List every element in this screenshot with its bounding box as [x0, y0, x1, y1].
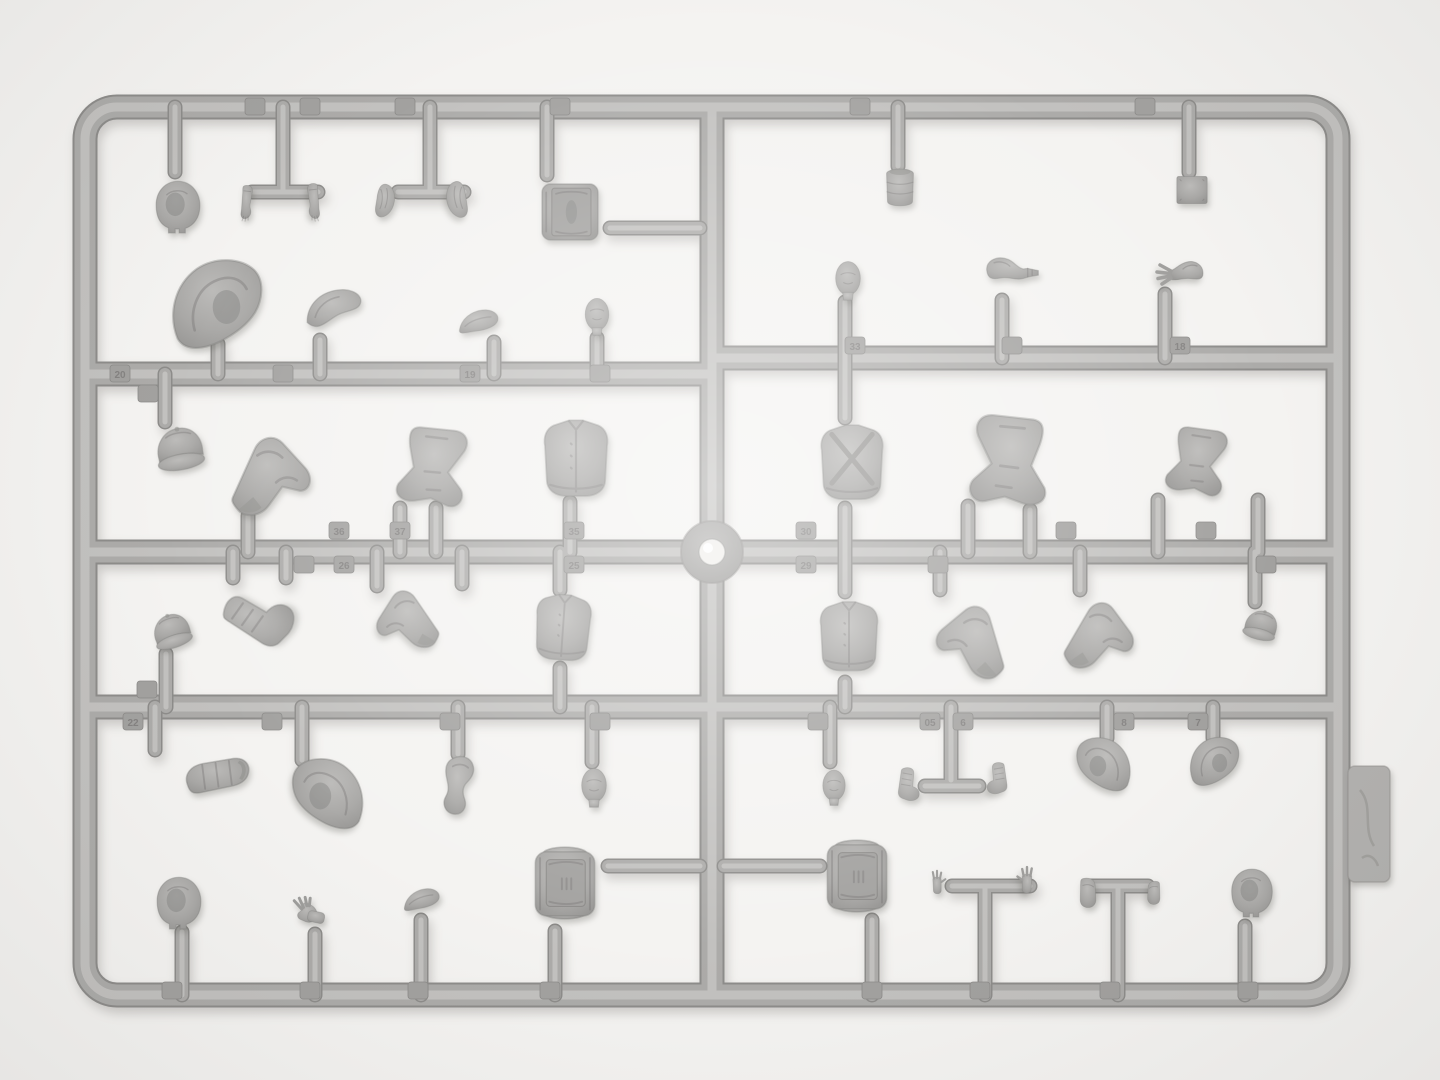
part-raised-hand-left [933, 871, 946, 894]
part-balaclava-head-1 [156, 181, 200, 233]
sprue-svg: 20193318363735302625292205687 [0, 0, 1440, 1080]
part-number-chip [1056, 522, 1076, 539]
part-number-chip [1002, 337, 1022, 354]
part-number-tab [970, 982, 990, 999]
part-number-text: 8 [1121, 718, 1127, 729]
part-number-chip [540, 982, 560, 999]
part-number-tab: 36 [329, 522, 349, 539]
part-number-tab [550, 98, 570, 115]
part-number-text: 7 [1195, 718, 1201, 729]
part-number-chip [970, 982, 990, 999]
part-number-chip [137, 681, 157, 698]
part-number-tab [1100, 982, 1120, 999]
part-legs-pair-3 [1164, 422, 1235, 500]
part-legs-pair-2 [970, 415, 1045, 504]
part-balaclava-head-2 [157, 877, 201, 929]
part-legs-pair-1 [395, 421, 475, 511]
part-number-tab: 7 [1188, 713, 1208, 730]
part-hood-2 [293, 759, 363, 829]
part-number-text: 05 [924, 718, 936, 729]
part-canteen [887, 168, 914, 205]
part-arm-with-pistol [987, 258, 1039, 279]
part-number-tab [1135, 98, 1155, 115]
sprue-photo: 20193318363735302625292205687 [0, 0, 1440, 1080]
part-hood-3 [1077, 738, 1130, 791]
part-number-chip [1256, 556, 1276, 573]
part-number-tab [300, 98, 320, 115]
part-backpack-1 [535, 847, 594, 919]
part-number-tab [395, 98, 415, 115]
part-number-tab [1256, 556, 1276, 573]
gate-highlight [703, 543, 713, 553]
part-number-tab: 35 [564, 522, 584, 539]
part-number-chip [245, 98, 265, 115]
part-head-1 [585, 298, 609, 335]
part-backpack-2 [827, 840, 886, 912]
part-number-tab: 30 [796, 522, 816, 539]
part-number-tab: 33 [845, 337, 865, 354]
part-number-text: 35 [568, 527, 580, 538]
part-torso-2 [534, 593, 593, 662]
part-collar-hood-piece [307, 290, 361, 327]
part-number-chip [300, 982, 320, 999]
part-cuff-piece-1 [1080, 878, 1096, 907]
part-number-text: 22 [127, 718, 139, 729]
part-sleeve-pouch-left [375, 184, 394, 217]
part-number-tab [540, 982, 560, 999]
part-number-tab [440, 713, 460, 730]
part-number-tab [294, 556, 314, 573]
part-number-tab: 05 [920, 713, 940, 730]
part-forearm-hand-left [241, 185, 253, 221]
manufacturer-tab [1348, 766, 1390, 882]
part-number-tab [262, 713, 282, 730]
part-head-2 [836, 262, 861, 301]
part-number-tab: 19 [460, 365, 480, 382]
part-number-tab [590, 365, 610, 382]
part-number-tab: 25 [564, 556, 584, 573]
part-number-tab: 18 [1170, 337, 1190, 354]
part-number-chip [273, 365, 293, 382]
part-field-cap-2 [148, 609, 194, 653]
part-number-tab [162, 982, 182, 999]
part-number-text: 29 [800, 561, 812, 572]
part-bent-leg-2 [932, 602, 1011, 681]
part-balaclava-head-3 [1232, 869, 1273, 917]
part-field-cap-3 [1241, 606, 1280, 643]
part-number-chip [928, 556, 948, 573]
part-bent-leg-3 [1063, 600, 1137, 674]
part-number-tab: 6 [953, 713, 973, 730]
part-number-tab [1056, 522, 1076, 539]
part-number-tab: 37 [390, 522, 410, 539]
part-number-chip [294, 556, 314, 573]
part-boot-shoe [218, 583, 299, 652]
part-number-chip [1135, 98, 1155, 115]
part-number-tab [300, 982, 320, 999]
part-number-tab: 20 [110, 365, 130, 382]
part-supply-box [542, 184, 598, 240]
part-number-tab: 22 [123, 713, 143, 730]
part-coat-roll [186, 758, 248, 793]
part-number-tab [862, 982, 882, 999]
part-number-tab [138, 385, 158, 402]
part-number-chip [440, 713, 460, 730]
part-number-text: 30 [800, 527, 812, 538]
part-crown-pad [402, 887, 441, 911]
part-hood-4 [1190, 737, 1238, 785]
part-number-chip [300, 98, 320, 115]
part-number-chip [590, 365, 610, 382]
part-number-text: 20 [114, 370, 126, 381]
part-number-tab: 8 [1114, 713, 1134, 730]
part-torso-cross-straps [821, 425, 882, 499]
part-lying-leg [371, 586, 440, 655]
part-number-tab [273, 365, 293, 382]
part-torso-buttons [820, 602, 877, 671]
part-torso-1 [545, 420, 608, 496]
part-number-chip [590, 713, 610, 730]
part-arm-open-hand [1157, 262, 1203, 284]
part-number-tab [1238, 982, 1258, 999]
part-number-chip [395, 98, 415, 115]
part-number-chip [1196, 522, 1216, 539]
part-number-chip [162, 982, 182, 999]
part-boot-upper-right [987, 763, 1007, 794]
part-number-text: 36 [333, 527, 345, 538]
part-number-text: 37 [394, 527, 406, 538]
injection-gate-mark [681, 521, 743, 583]
part-number-text: 26 [338, 561, 350, 572]
part-number-tab [590, 713, 610, 730]
part-number-chip [862, 982, 882, 999]
part-number-text: 33 [849, 342, 861, 353]
part-number-chip [1238, 982, 1258, 999]
part-mitt-arm [444, 757, 474, 814]
part-field-cap-1 [152, 423, 206, 474]
part-bent-leg-1 [232, 438, 310, 515]
part-large-hood [173, 260, 261, 348]
part-number-text: 18 [1174, 342, 1186, 353]
part-number-text: 6 [960, 718, 966, 729]
part-number-tab [850, 98, 870, 115]
part-number-chip [1100, 982, 1120, 999]
part-number-tab [928, 556, 948, 573]
part-number-tab: 26 [334, 556, 354, 573]
part-number-chip [262, 713, 282, 730]
part-cuff-piece-2 [1148, 881, 1160, 904]
part-number-tab [137, 681, 157, 698]
part-number-chip [138, 385, 158, 402]
part-number-chip [808, 713, 828, 730]
part-flat-plate [1177, 176, 1207, 203]
part-number-tab [408, 982, 428, 999]
part-head-3 [582, 769, 607, 808]
part-number-tab [245, 98, 265, 115]
part-head-4 [823, 770, 845, 805]
part-number-chip [408, 982, 428, 999]
part-number-tab [808, 713, 828, 730]
part-number-text: 25 [568, 561, 580, 572]
part-number-chip [850, 98, 870, 115]
gate-shine [699, 539, 725, 565]
part-boot-upper-left [898, 768, 919, 801]
part-number-text: 19 [464, 370, 476, 381]
part-forearm-hand-right [307, 183, 319, 221]
part-number-tab [1002, 337, 1022, 354]
part-number-tab [1196, 522, 1216, 539]
part-glove-hand [294, 897, 325, 924]
part-number-tab: 29 [796, 556, 816, 573]
part-visor-cap [458, 309, 500, 334]
part-number-chip [550, 98, 570, 115]
